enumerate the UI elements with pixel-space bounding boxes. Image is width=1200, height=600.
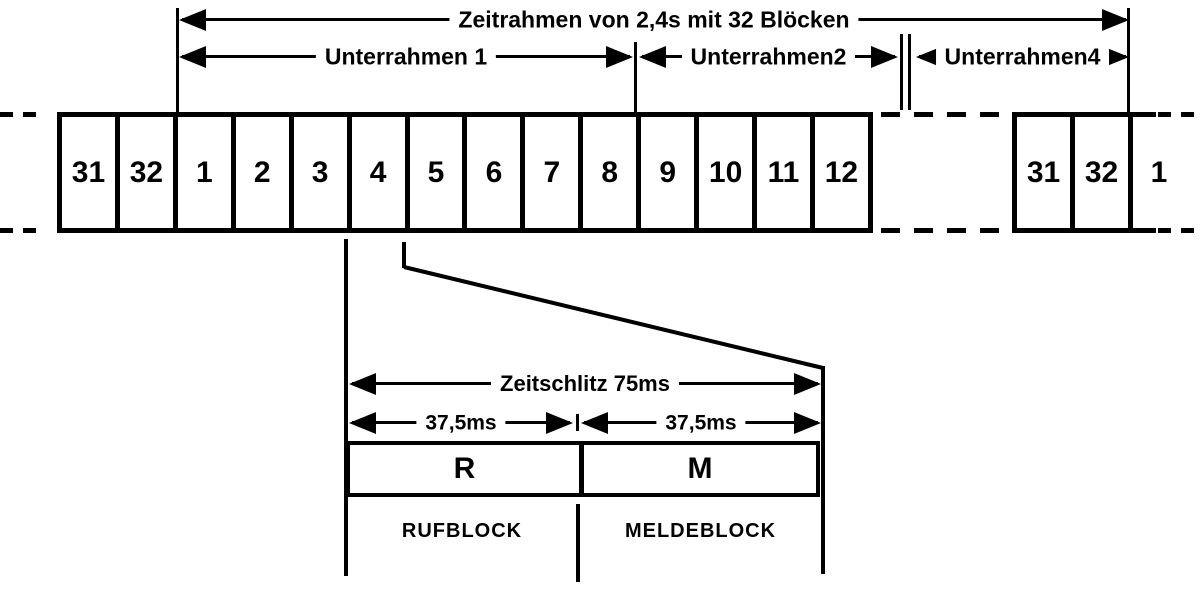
block-cell: 2 [236, 117, 294, 228]
callout-left-line [344, 239, 348, 576]
time-frame-label: Zeitrahmen von 2,4s mit 32 Blöcken [449, 9, 858, 32]
arrowhead-left-icon [349, 412, 376, 434]
callout-right-line [821, 366, 825, 574]
timeslot-box: R M [346, 441, 820, 497]
half-right-arrow: 37,5ms [581, 411, 821, 435]
row-gap-dash [881, 112, 1008, 117]
block-cell: 31 [1017, 117, 1075, 228]
arrowhead-right-icon [1102, 9, 1129, 31]
arrowhead-left-icon [639, 46, 666, 68]
block-cell: 3 [294, 117, 352, 228]
block-cell: 5 [410, 117, 468, 228]
block-cell: 10 [699, 117, 757, 228]
arrowhead-left-icon [179, 46, 206, 68]
row-gap-dash [881, 228, 1008, 233]
meldeblock-cell: M [584, 445, 816, 493]
rufblock-cell: R [350, 445, 584, 493]
block-cell: 1 [178, 117, 236, 228]
block-cell: 9 [641, 117, 699, 228]
arrowhead-right-icon [546, 412, 573, 434]
subframe-2-arrow: Unterrahmen2 [639, 45, 898, 69]
frame-end-tick [1127, 8, 1130, 112]
arrowhead-left-icon [179, 9, 206, 31]
block-cell: 8 [583, 117, 641, 228]
block-strip-main: 31 32 1 2 3 4 5 6 7 8 9 10 11 12 [57, 112, 873, 233]
time-frame-arrow: Zeitrahmen von 2,4s mit 32 Blöcken [179, 8, 1129, 32]
block-cell: 12 [815, 117, 868, 228]
half-left-arrow: 37,5ms [349, 411, 573, 435]
callout-diagonal-line [0, 0, 1200, 600]
subframe-4-arrow: Unterrahmen4 [916, 45, 1129, 69]
block-cell: 31 [62, 117, 120, 228]
callout-middle-line [576, 504, 580, 582]
break-marker-line-2 [908, 34, 911, 110]
subframe-2-label: Unterrahmen2 [682, 46, 856, 69]
arrowhead-right-icon [606, 46, 633, 68]
arrowhead-left-icon [581, 412, 608, 434]
half-divider-tick [576, 414, 579, 431]
break-marker-line-1 [900, 34, 903, 110]
frame-start-tick [176, 8, 179, 112]
block-cell: 6 [467, 117, 525, 228]
subframe-divider-tick [634, 42, 637, 112]
arrowhead-right-icon [794, 412, 821, 434]
block-cell: 32 [120, 117, 178, 228]
rufblock-label: RUFBLOCK [350, 519, 574, 543]
block-cell-open: 1 [1135, 112, 1183, 233]
meldeblock-label: MELDEBLOCK [582, 519, 819, 543]
time-frame-diagram: Zeitrahmen von 2,4s mit 32 Blöcken Unter… [0, 0, 1200, 600]
arrowhead-right-icon [794, 373, 821, 395]
timeslot-label: Zeitschlitz 75ms [491, 373, 679, 395]
half-left-label: 37,5ms [416, 413, 505, 434]
row-continuation-dash [0, 228, 44, 233]
subframe-1-arrow: Unterrahmen 1 [179, 45, 633, 69]
arrowhead-left-icon [349, 373, 376, 395]
timeslot-arrow: Zeitschlitz 75ms [349, 372, 821, 396]
block-cell: 4 [352, 117, 410, 228]
subframe-4-label: Unterrahmen4 [936, 46, 1110, 69]
subframe-1-label: Unterrahmen 1 [316, 46, 496, 69]
row-continuation-dash [0, 112, 44, 117]
callout-right-line-top [402, 242, 406, 268]
block-cell: 7 [525, 117, 583, 228]
block-strip-next-frame: 31 32 [1012, 112, 1133, 233]
block-cell: 11 [757, 117, 815, 228]
arrowhead-right-icon [871, 46, 898, 68]
half-right-label: 37,5ms [656, 413, 745, 434]
block-cell: 32 [1075, 117, 1128, 228]
